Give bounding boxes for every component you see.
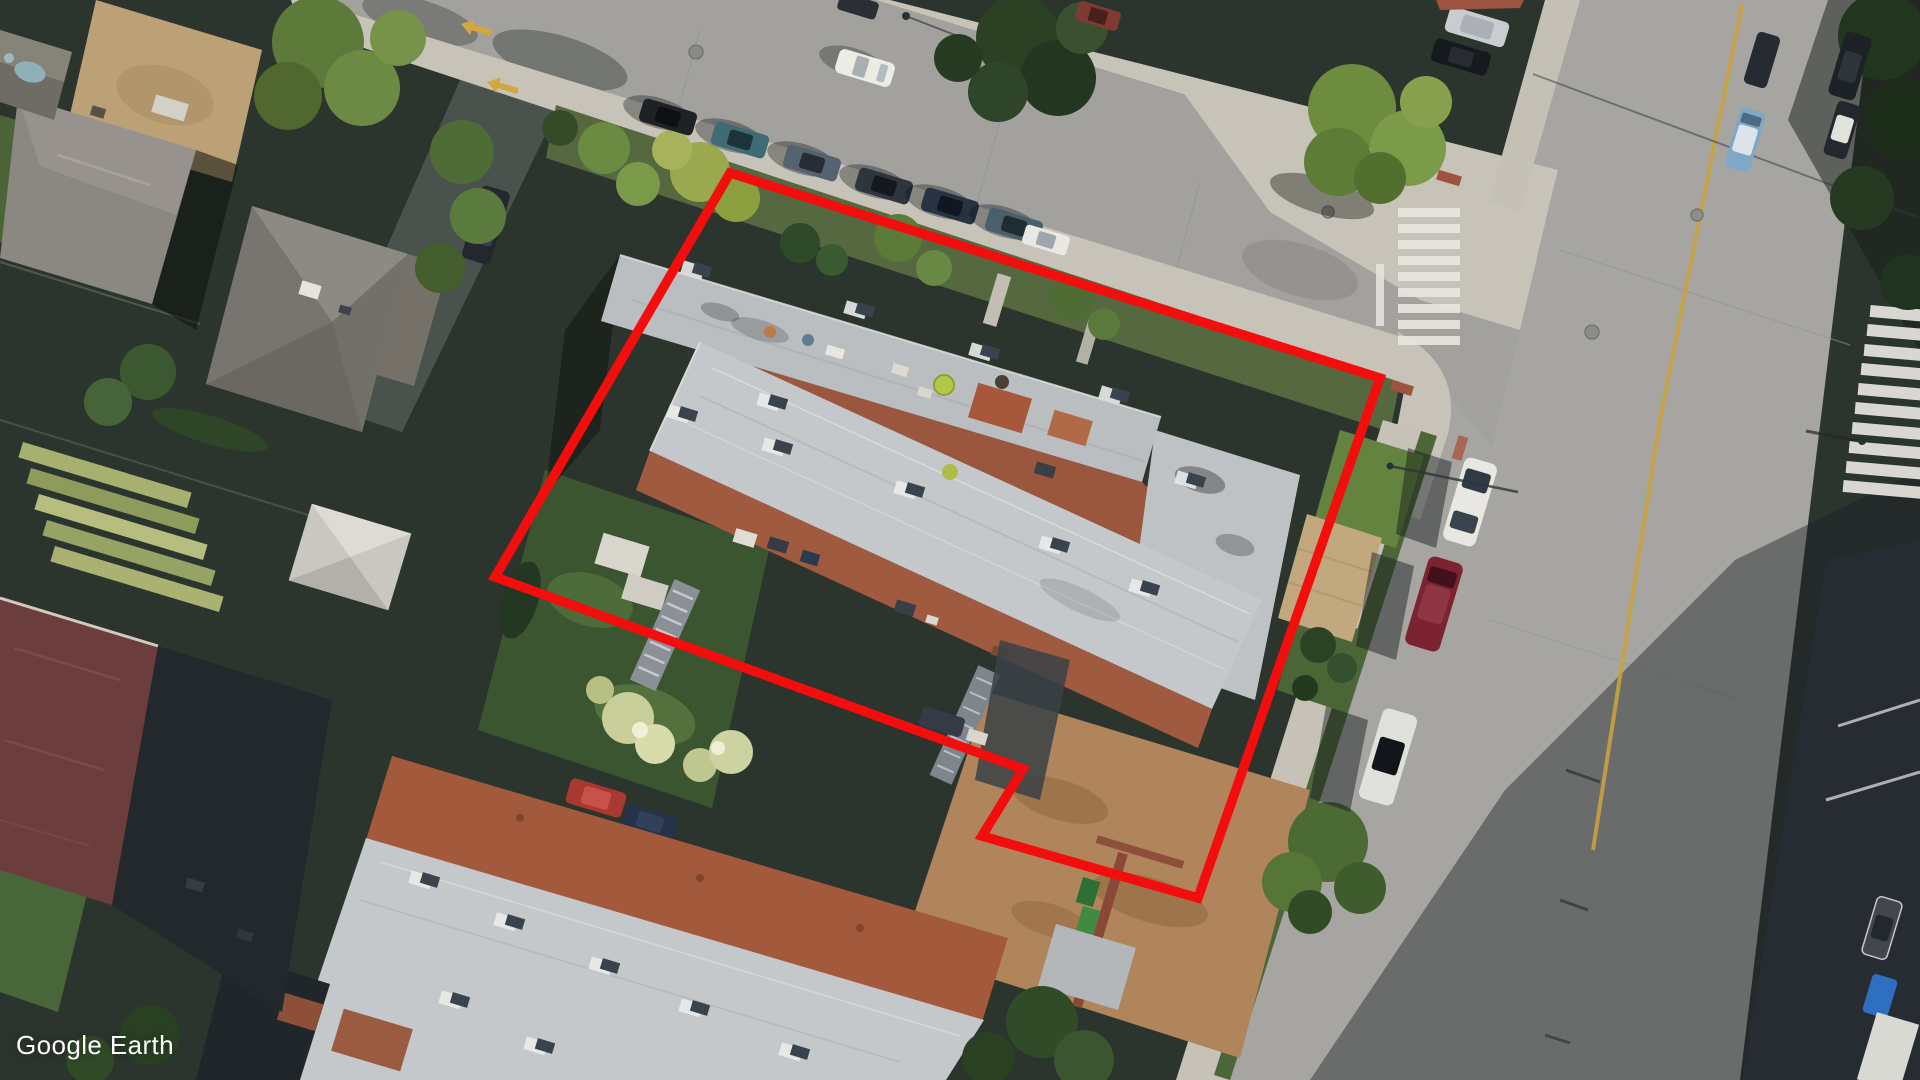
aerial-imagery [0,0,1920,1080]
google-earth-canvas[interactable]: Google Earth [0,0,1920,1080]
pedestrian [1858,437,1866,445]
google-earth-watermark: Google Earth [16,1030,174,1061]
